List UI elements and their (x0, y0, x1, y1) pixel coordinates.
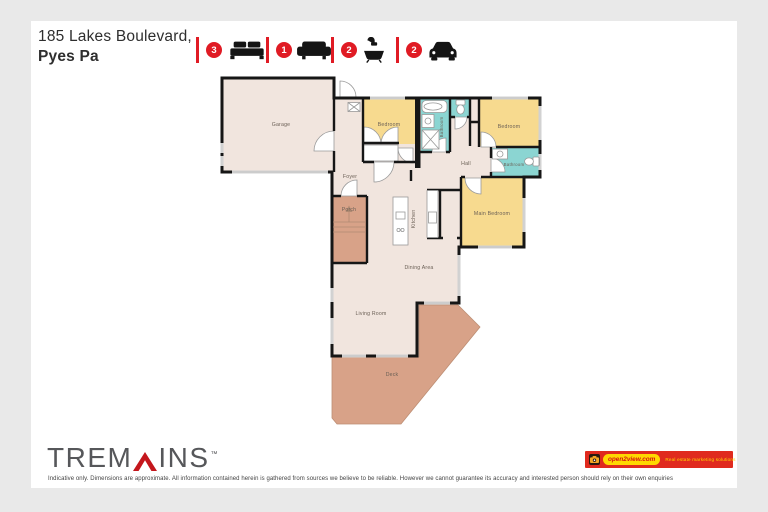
label-living: Living Room (355, 311, 386, 317)
open2view-banner: open2view.com Real estate marketing solu… (585, 451, 733, 468)
tremains-logo: TREM INS ™ (47, 442, 219, 474)
bathtub (422, 101, 447, 113)
disclaimer-text: Indicative only. Dimensions are approxim… (48, 476, 738, 482)
roof-caret-icon (133, 452, 157, 471)
label-bedroom-1: Bedroom (378, 122, 400, 128)
toilet-cistern (456, 100, 465, 105)
label-bathroom-1: Bathroom (439, 117, 444, 138)
label-main-bedroom: Main Bedroom (474, 211, 510, 217)
room-fills (222, 78, 540, 424)
toilet-2 (525, 158, 534, 165)
door-entry (340, 81, 356, 97)
open2view-tagline: Real estate marketing solutions (665, 457, 735, 462)
floorplan-page: 185 Lakes Boulevard, Pyes Pa 3 1 (0, 0, 768, 512)
label-porch: Porch (342, 207, 357, 213)
thick-wall-bathroom-1 (415, 98, 421, 168)
brand-text-1: TREM (47, 442, 132, 474)
trademark: ™ (211, 451, 220, 458)
label-hall: Hall (461, 161, 471, 167)
toilet-2-cistern (533, 157, 539, 166)
brand-text-2: INS (158, 442, 209, 474)
toilet (457, 105, 465, 114)
label-garage: Garage (272, 122, 291, 128)
label-dining: Dining Area (404, 265, 433, 271)
label-kitchen: Kitchen (411, 210, 417, 229)
label-bathroom-2: Bathroom (504, 162, 525, 167)
floor-plan: Garage Bedroom Bathroom Bedroom Hall Bat… (0, 0, 768, 512)
vanity-2 (493, 149, 508, 159)
label-deck: Deck (386, 372, 399, 378)
vanity (422, 115, 434, 128)
wardrobe (363, 145, 398, 161)
label-bedroom-2: Bedroom (498, 124, 520, 130)
kitchen-island (393, 197, 408, 245)
open2view-domain: open2view.com (603, 454, 660, 465)
camera-icon (589, 454, 600, 465)
label-foyer: Foyer (343, 174, 357, 180)
